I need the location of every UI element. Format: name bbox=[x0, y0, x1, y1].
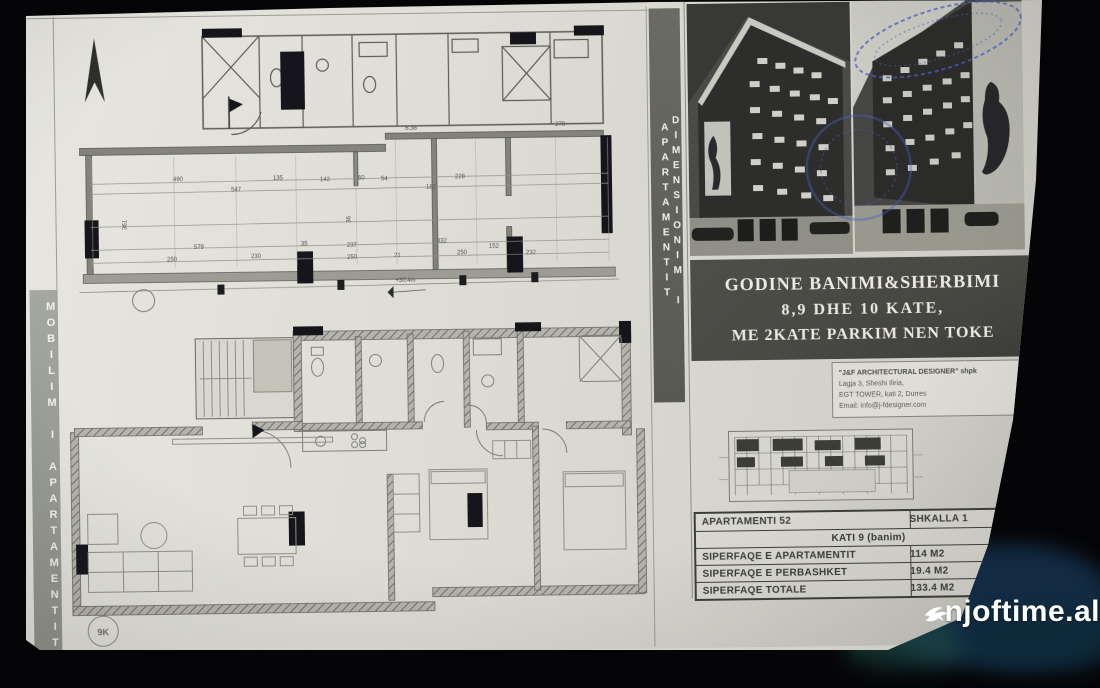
title-block-panel: GODINE BANIMI&SHERBIMI 8,9 DHE 10 KATE, … bbox=[683, 0, 1040, 598]
dimension-label: 135 bbox=[273, 176, 283, 182]
building-render-photo-left bbox=[687, 2, 854, 256]
dimension-plan-drawing bbox=[54, 11, 650, 325]
project-title-line1: GODINE BANIMI&SHERBIMI bbox=[690, 270, 1034, 296]
background-dark-edge bbox=[1042, 0, 1100, 560]
dimension-label: 230 bbox=[251, 254, 261, 260]
dimension-label: 152 bbox=[489, 244, 499, 250]
project-title-line2: 8,9 DHE 10 KATE, bbox=[691, 298, 1035, 321]
dimension-label: 142 bbox=[320, 177, 330, 183]
dimension-label: 579 bbox=[194, 245, 204, 251]
dimension-label: 182 bbox=[426, 185, 436, 191]
stairwell-id: SHKALLA 1 bbox=[901, 512, 1034, 525]
column-divider bbox=[910, 580, 912, 596]
dimension-label: 54 bbox=[381, 176, 388, 182]
dimension-label: 21 bbox=[394, 253, 401, 259]
architectural-sheet-photo: MOBILIM I APARTAMENTIT DIMENSIONIM I APA… bbox=[0, 0, 1100, 650]
column-divider bbox=[910, 563, 912, 579]
column-divider bbox=[910, 546, 912, 562]
apartment-area-label: SIPERFAQE E APARTAMENTIT bbox=[702, 549, 902, 563]
dimension-label: 490 bbox=[173, 177, 183, 183]
dimension-label: 237 bbox=[347, 243, 357, 249]
key-plan-thumbnail bbox=[714, 425, 927, 508]
dimension-label: 250 bbox=[457, 250, 467, 256]
level-marker-icon bbox=[387, 286, 393, 298]
level-annotation: +30.4m bbox=[395, 278, 415, 284]
project-title-block: GODINE BANIMI&SHERBIMI 8,9 DHE 10 KATE, … bbox=[690, 255, 1035, 361]
building-render-photo-right bbox=[851, 0, 1025, 252]
dimension-label: 232 bbox=[526, 250, 536, 256]
watermark-text: njoftime.al bbox=[944, 595, 1100, 629]
total-area-label: SIPERFAQE TOTALE bbox=[703, 583, 903, 597]
dimension-label: 278 bbox=[555, 122, 565, 128]
dimension-label: 332 bbox=[437, 238, 447, 244]
dimension-label: 6.36 bbox=[405, 126, 417, 132]
architect-info-box: "J&F ARCHITECTURAL DESIGNER" shpk Lagja … bbox=[832, 359, 1031, 418]
apartment-id: APARTAMENTI 52 bbox=[702, 514, 902, 528]
north-arrow-icon bbox=[84, 38, 105, 102]
dimension-floor-plan: +30.4m 49054713514260541822286.362785793… bbox=[54, 11, 650, 325]
furniture-floor-plan: 9K bbox=[55, 321, 655, 657]
shared-area-label: SIPERFAQE E PERBASHKET bbox=[702, 566, 902, 580]
dimension-label: 60 bbox=[358, 176, 365, 182]
site-watermark: njoftime.al bbox=[924, 584, 1100, 640]
floor-id: KATI 9 (banim) bbox=[831, 532, 905, 544]
listing-photo-canvas: { "strips": { "left": "MOBILIM I APARTAM… bbox=[0, 0, 1100, 650]
dimension-label: 250 bbox=[167, 257, 177, 263]
column-divider bbox=[910, 511, 912, 528]
dimension-label: 361 bbox=[122, 220, 128, 230]
dimension-label: 228 bbox=[455, 174, 465, 180]
architect-email: Email: info@j-fdesigner.com bbox=[839, 398, 1023, 412]
furniture-plan-drawing: 9K bbox=[55, 321, 655, 657]
dimension-label: 547 bbox=[231, 187, 241, 193]
grid-marker-label: 9K bbox=[97, 627, 109, 637]
dimension-label: 250 bbox=[347, 255, 357, 261]
strip-dimensionim-label: DIMENSIONIM I APARTAMENTIT bbox=[649, 8, 685, 402]
project-title-line3: ME 2KATE PARKIM NEN TOKE bbox=[691, 323, 1035, 346]
grid-bubble bbox=[132, 290, 154, 312]
dimension-label: 35 bbox=[301, 241, 308, 247]
dimension-label: 36 bbox=[346, 216, 352, 223]
